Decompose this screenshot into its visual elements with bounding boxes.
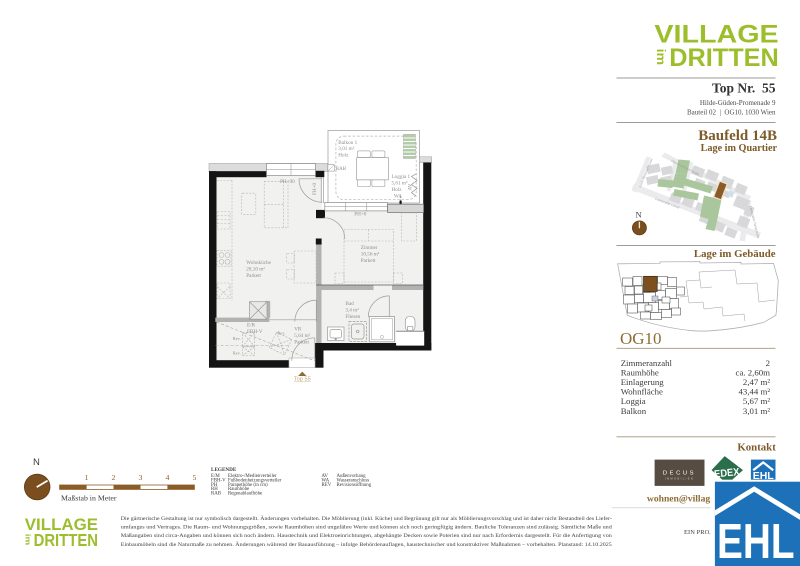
svg-text:N: N (636, 210, 642, 220)
svg-text:Bauteil 02 | OG10, 1030 Wien: Bauteil 02 | OG10, 1030 Wien (687, 108, 776, 116)
svg-text:Baufeld 14B: Baufeld 14B (698, 128, 777, 144)
svg-text:Fliesen: Fliesen (345, 314, 360, 320)
svg-text:LEGENDE: LEGENDE (211, 467, 237, 473)
svg-text:Lage im Quartier: Lage im Quartier (701, 143, 778, 154)
svg-text:5: 5 (192, 473, 196, 482)
svg-text:1: 1 (85, 473, 89, 482)
svg-text:im: im (23, 534, 32, 546)
svg-text:Zimmeranzahl: Zimmeranzahl (621, 358, 673, 368)
svg-text:PH+0: PH+0 (354, 211, 367, 217)
svg-text:OG10: OG10 (620, 329, 662, 348)
svg-text:umfanges und Vertrages. Die Ra: umfanges und Vertrages. Die Raum- und Wo… (121, 526, 613, 531)
svg-text:10,56 m²: 10,56 m² (361, 251, 380, 257)
svg-text:Rev.: Rev. (233, 350, 241, 355)
svg-text:Maßangaben sind circa-Angaben: Maßangaben sind circa-Angaben und können… (121, 534, 613, 539)
svg-text:4: 4 (165, 473, 169, 482)
svg-text:Balkon 1: Balkon 1 (338, 140, 357, 146)
svg-text:Holz: Holz (338, 153, 349, 159)
svg-text:BAR: BAR (336, 166, 347, 172)
svg-text:Parkett: Parkett (246, 273, 261, 279)
svg-text:3,01 m²: 3,01 m² (338, 146, 354, 152)
svg-text:Raumhöhe: Raumhöhe (621, 367, 659, 377)
svg-text:N: N (33, 457, 40, 468)
svg-text:5,64 m²: 5,64 m² (294, 333, 310, 339)
svg-text:EHL: EHL (717, 515, 795, 566)
svg-text:Einlagerung: Einlagerung (621, 377, 665, 387)
svg-text:FBH-V: FBH-V (247, 329, 263, 335)
svg-text:3: 3 (139, 473, 143, 482)
svg-text:ca. 2,60m: ca. 2,60m (736, 367, 771, 377)
svg-text:Die gärtnerische Gestaltung is: Die gärtnerische Gestaltung ist nur symb… (121, 516, 613, 522)
svg-text:Revisionsöffnung: Revisionsöffnung (337, 483, 372, 488)
svg-text:IMMOBILIEN: IMMOBILIEN (665, 476, 694, 480)
svg-text:Wohnfläche: Wohnfläche (621, 387, 663, 397)
svg-text:Parkett: Parkett (294, 339, 309, 345)
svg-text:28,10 m²: 28,10 m² (246, 266, 265, 272)
svg-text:WA: WA (394, 193, 402, 199)
svg-text:DRITTEN: DRITTEN (669, 44, 778, 72)
svg-text:5,67 m²: 5,67 m² (743, 396, 770, 406)
svg-text:Balkon: Balkon (621, 406, 647, 416)
svg-text:Holz: Holz (392, 187, 403, 193)
svg-text:Maßstab in Meter: Maßstab in Meter (61, 493, 117, 502)
svg-text:3,4 m²: 3,4 m² (345, 307, 359, 313)
svg-text:Regenablaufhöhe: Regenablaufhöhe (228, 492, 262, 497)
svg-text:Zimmer: Zimmer (361, 245, 378, 251)
svg-text:43,44 m²: 43,44 m² (739, 387, 771, 397)
svg-text:Lage im Gebäude: Lage im Gebäude (694, 248, 776, 260)
svg-text:VR: VR (294, 327, 302, 333)
svg-text:im: im (654, 49, 666, 66)
svg-text:Loggia: Loggia (621, 396, 646, 406)
svg-text:DRITTEN: DRITTEN (34, 530, 98, 550)
svg-text:FH+0: FH+0 (312, 182, 318, 195)
svg-text:5,61 m²: 5,61 m² (392, 180, 408, 186)
svg-text:RAB: RAB (211, 492, 222, 497)
svg-text:2,47 m²: 2,47 m² (743, 377, 770, 387)
svg-text:Rev.: Rev. (233, 336, 241, 341)
svg-text:REV: REV (322, 483, 332, 488)
svg-text:PH+90: PH+90 (280, 179, 295, 185)
svg-text:Einbaumöbeln sind die Naturmaß: Einbaumöbeln sind die Naturmaße zu nehme… (121, 542, 613, 548)
svg-text:Top Nr. 55: Top Nr. 55 (712, 81, 776, 96)
svg-text:AV: AV (408, 183, 414, 190)
svg-text:DECUS: DECUS (663, 471, 696, 477)
svg-text:Rev.: Rev. (278, 331, 286, 336)
svg-text:Wohnküche: Wohnküche (246, 260, 271, 266)
svg-text:E/R: E/R (247, 323, 256, 329)
svg-text:Parkett: Parkett (361, 258, 376, 264)
svg-text:Loggia 1: Loggia 1 (392, 174, 411, 180)
svg-text:2: 2 (112, 473, 116, 482)
svg-text:Bad: Bad (345, 301, 354, 307)
svg-text:Hilde-Güden-Promenade 9: Hilde-Güden-Promenade 9 (700, 99, 776, 107)
svg-text:3,01 m²: 3,01 m² (743, 406, 770, 416)
svg-text:2: 2 (766, 358, 770, 368)
svg-text:Kontakt: Kontakt (737, 441, 776, 453)
